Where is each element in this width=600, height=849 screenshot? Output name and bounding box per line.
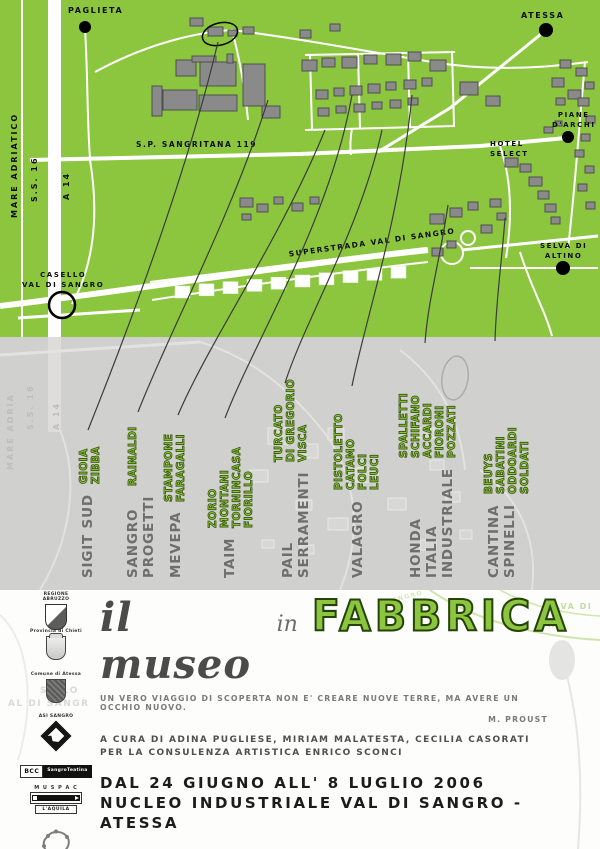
curators-text: A CURA DI ADINA PUGLIESE, MIRIAM MALATES…	[100, 734, 570, 760]
label-selva-di-altino: SELVA DI ALTINO	[540, 241, 587, 261]
label-ss16: S.S. 16	[30, 156, 39, 202]
logo-asi-sangro: ASI SANGRO	[14, 714, 98, 747]
ghost-label-mare: MARE ADRIA	[6, 393, 15, 470]
company-name: SIGIT SUD	[80, 494, 96, 578]
asi-diamond-icon	[40, 720, 71, 751]
paglieta-dot	[79, 21, 91, 33]
chieti-crest-icon	[46, 636, 66, 660]
company-name: TAIM	[222, 538, 238, 578]
logo-muspac: M U S P A C L'AQUILA	[14, 786, 98, 814]
selva-di-altino-dot	[556, 261, 570, 275]
label-hotel-select: HOTEL SELECT	[490, 139, 529, 159]
artist-names: PISTOLETTO CATAMO FOLCI LEUCI	[333, 413, 381, 490]
locator-map: PAGLIETA ATESSA MARE ADRIATICO S.S. 16 A…	[0, 0, 600, 337]
label-mare-adriatico: MARE ADRIATICO	[10, 113, 19, 218]
logo-asi-caption: ASI SANGRO	[39, 714, 73, 719]
artist-names: TURCATO DI GREGORIO VISCA	[273, 379, 309, 462]
event-title: il museo in FABBRICA	[100, 593, 570, 688]
piane-darchi-dot	[562, 131, 574, 143]
abruzzo-shield-icon	[45, 604, 67, 630]
logo-regione-caption: REGIONE ABRUZZO	[43, 592, 69, 602]
info-panel: ELVA DI NO SELLO AL DI SANGR SANGRO REGI…	[0, 590, 600, 849]
artist-names: RAINALDI	[127, 426, 139, 486]
artist-names: BEUYS SABATINI ODDOARDI SOLDATI	[483, 377, 531, 494]
logo-provincia-chieti: Provincia di Chieti	[14, 629, 98, 660]
logo-bcc: BCC SangroTeatina	[14, 764, 98, 778]
event-dates: DAL 24 GIUGNO ALL' 8 LUGLIO 2006 NUCLEO …	[100, 773, 570, 833]
poster: PAGLIETA ATESSA MARE ADRIATICO S.S. 16 A…	[0, 0, 600, 849]
logo-oscam-blob	[14, 828, 98, 849]
atessa-crest-icon	[46, 679, 66, 703]
label-paglieta: PAGLIETA	[68, 6, 123, 16]
ghost-label-ss16: S.S. 16	[26, 384, 35, 430]
quote-text: UN VERO VIAGGIO DI SCOPERTA NON E' CREAR…	[100, 694, 519, 712]
title-il-museo: il museo	[100, 594, 259, 688]
logo-comune-caption: Comune di Atessa	[31, 672, 81, 677]
proust-quote: UN VERO VIAGGIO DI SCOPERTA NON E' CREAR…	[100, 694, 562, 724]
logo-comune-atessa: Comune di Atessa	[14, 672, 98, 703]
artist-names: STAMPONE FARAGALLI	[163, 434, 187, 502]
logo-regione-abruzzo: REGIONE ABRUZZO	[14, 592, 98, 630]
label-piane-darchi: PIANE D'ARCHI	[552, 110, 596, 130]
oscam-blob-icon	[38, 828, 74, 849]
company-name: VALAGRO	[350, 500, 366, 578]
exhibitors-band: MARE ADRIA S.S. 16 A 14 SIGIT SUDGIOIA Z…	[0, 337, 600, 590]
ghost-label-a14: A 14	[52, 402, 61, 430]
bcc-mark-icon: BCC	[20, 765, 43, 778]
event-info: il museo in FABBRICA UN VERO VIAGGIO DI …	[100, 593, 570, 849]
company-name: PAIL SERRAMENTI	[280, 472, 312, 578]
artist-names: ZORIO MONTANI TORNINCASA FIORILLO	[207, 447, 255, 528]
company-name: SANGRO PROGETTI	[125, 496, 157, 578]
label-a14: A 14	[62, 172, 71, 200]
muspac-mark-icon	[30, 792, 82, 804]
label-casello: CASELLO VAL DI SANGRO	[22, 270, 104, 290]
company-name: MEVEPA	[168, 512, 184, 578]
artist-names: GIOIA ZIBBA	[78, 446, 102, 484]
atessa-dot	[539, 23, 553, 37]
title-in: in	[277, 612, 298, 637]
label-sangritana: S.P. SANGRITANA 119	[136, 140, 257, 150]
bcc-sub-label: SangroTeatina	[43, 765, 91, 778]
muspac-label: M U S P A C	[34, 786, 78, 791]
sponsor-logos: REGIONE ABRUZZO Provincia di Chieti Comu…	[14, 590, 98, 849]
company-name: HONDA ITALIA INDUSTRIALE	[408, 468, 456, 578]
muspac-sub-label: L'AQUILA	[35, 805, 77, 814]
label-atessa: ATESSA	[521, 11, 564, 21]
company-name: CANTINA SPINELLI	[486, 504, 518, 578]
artist-names: SPALLETTI SCHIFANO ACCARDI FIORONI POZZA…	[398, 393, 458, 458]
title-fabbrica: FABBRICA	[312, 591, 570, 641]
quote-author: M. PROUST	[100, 715, 562, 724]
